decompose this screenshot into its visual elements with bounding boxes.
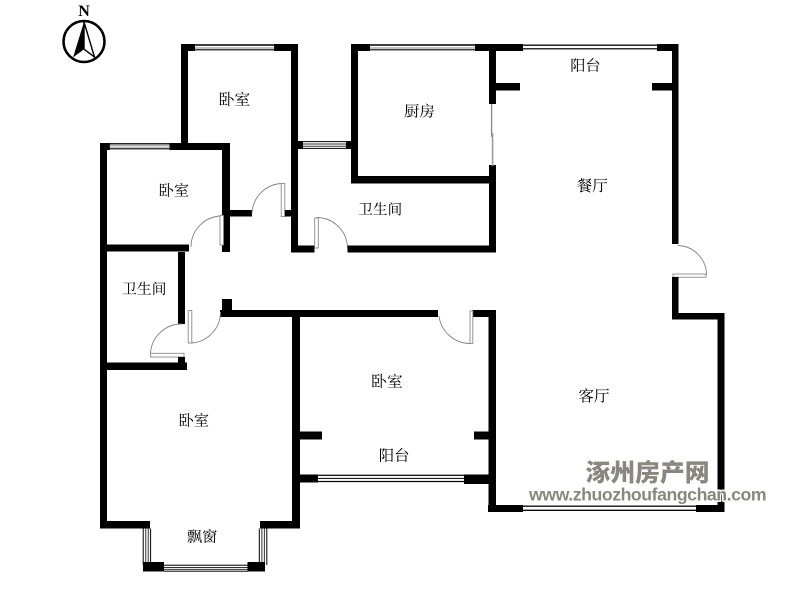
svg-text:www.zhuozhoufangchan.com: www.zhuozhoufangchan.com bbox=[528, 485, 766, 505]
svg-text:N: N bbox=[78, 3, 90, 20]
